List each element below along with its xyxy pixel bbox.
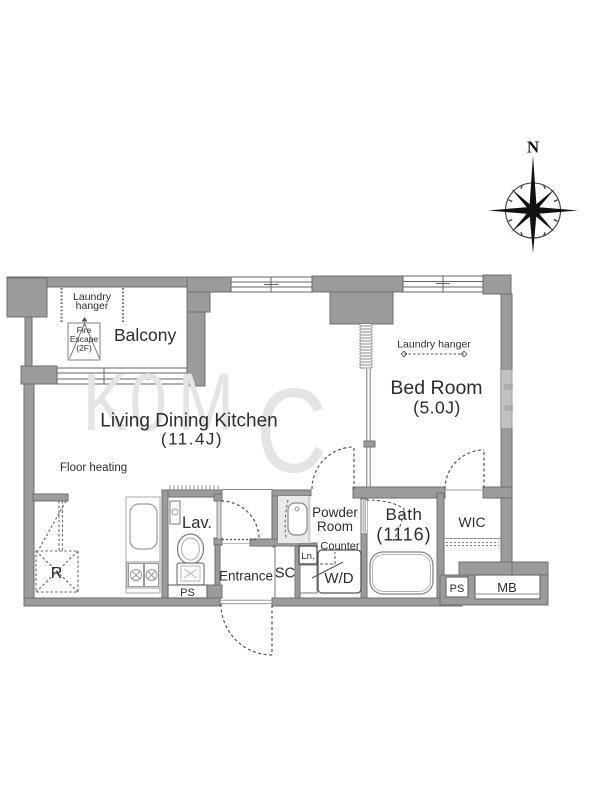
svg-text:Balcony: Balcony — [114, 325, 177, 345]
svg-text:Floor heating: Floor heating — [60, 462, 127, 474]
svg-text:Ln.: Ln. — [301, 551, 314, 562]
svg-text:PS: PS — [180, 587, 195, 599]
svg-text:Room: Room — [317, 519, 353, 534]
svg-text:K: K — [83, 356, 128, 448]
svg-text:Bed Room: Bed Room — [390, 377, 482, 399]
svg-text:Living Dining Kitchen: Living Dining Kitchen — [100, 411, 277, 432]
svg-text:C: C — [256, 365, 327, 498]
svg-text:SC: SC — [275, 566, 295, 582]
svg-text:PS: PS — [450, 583, 465, 595]
svg-text:MB: MB — [497, 580, 517, 595]
svg-text:(1116): (1116) — [376, 525, 431, 545]
svg-text:(11.4J): (11.4J) — [161, 430, 223, 449]
svg-text:N: N — [527, 138, 540, 157]
svg-text:WIC: WIC — [458, 514, 485, 530]
svg-text:Counter: Counter — [320, 541, 359, 553]
svg-text:(5.0J): (5.0J) — [413, 398, 461, 418]
svg-text:Entrance: Entrance — [219, 569, 273, 584]
svg-text:hanger: hanger — [76, 300, 109, 312]
svg-text:W/D: W/D — [324, 570, 353, 587]
svg-text:Lav.: Lav. — [182, 514, 212, 532]
svg-text:Powder: Powder — [312, 505, 358, 520]
svg-text:(2F): (2F) — [76, 343, 92, 353]
svg-text:Laundry hanger: Laundry hanger — [397, 339, 471, 351]
svg-text:Bath: Bath — [386, 505, 423, 524]
svg-text:R: R — [51, 565, 63, 582]
